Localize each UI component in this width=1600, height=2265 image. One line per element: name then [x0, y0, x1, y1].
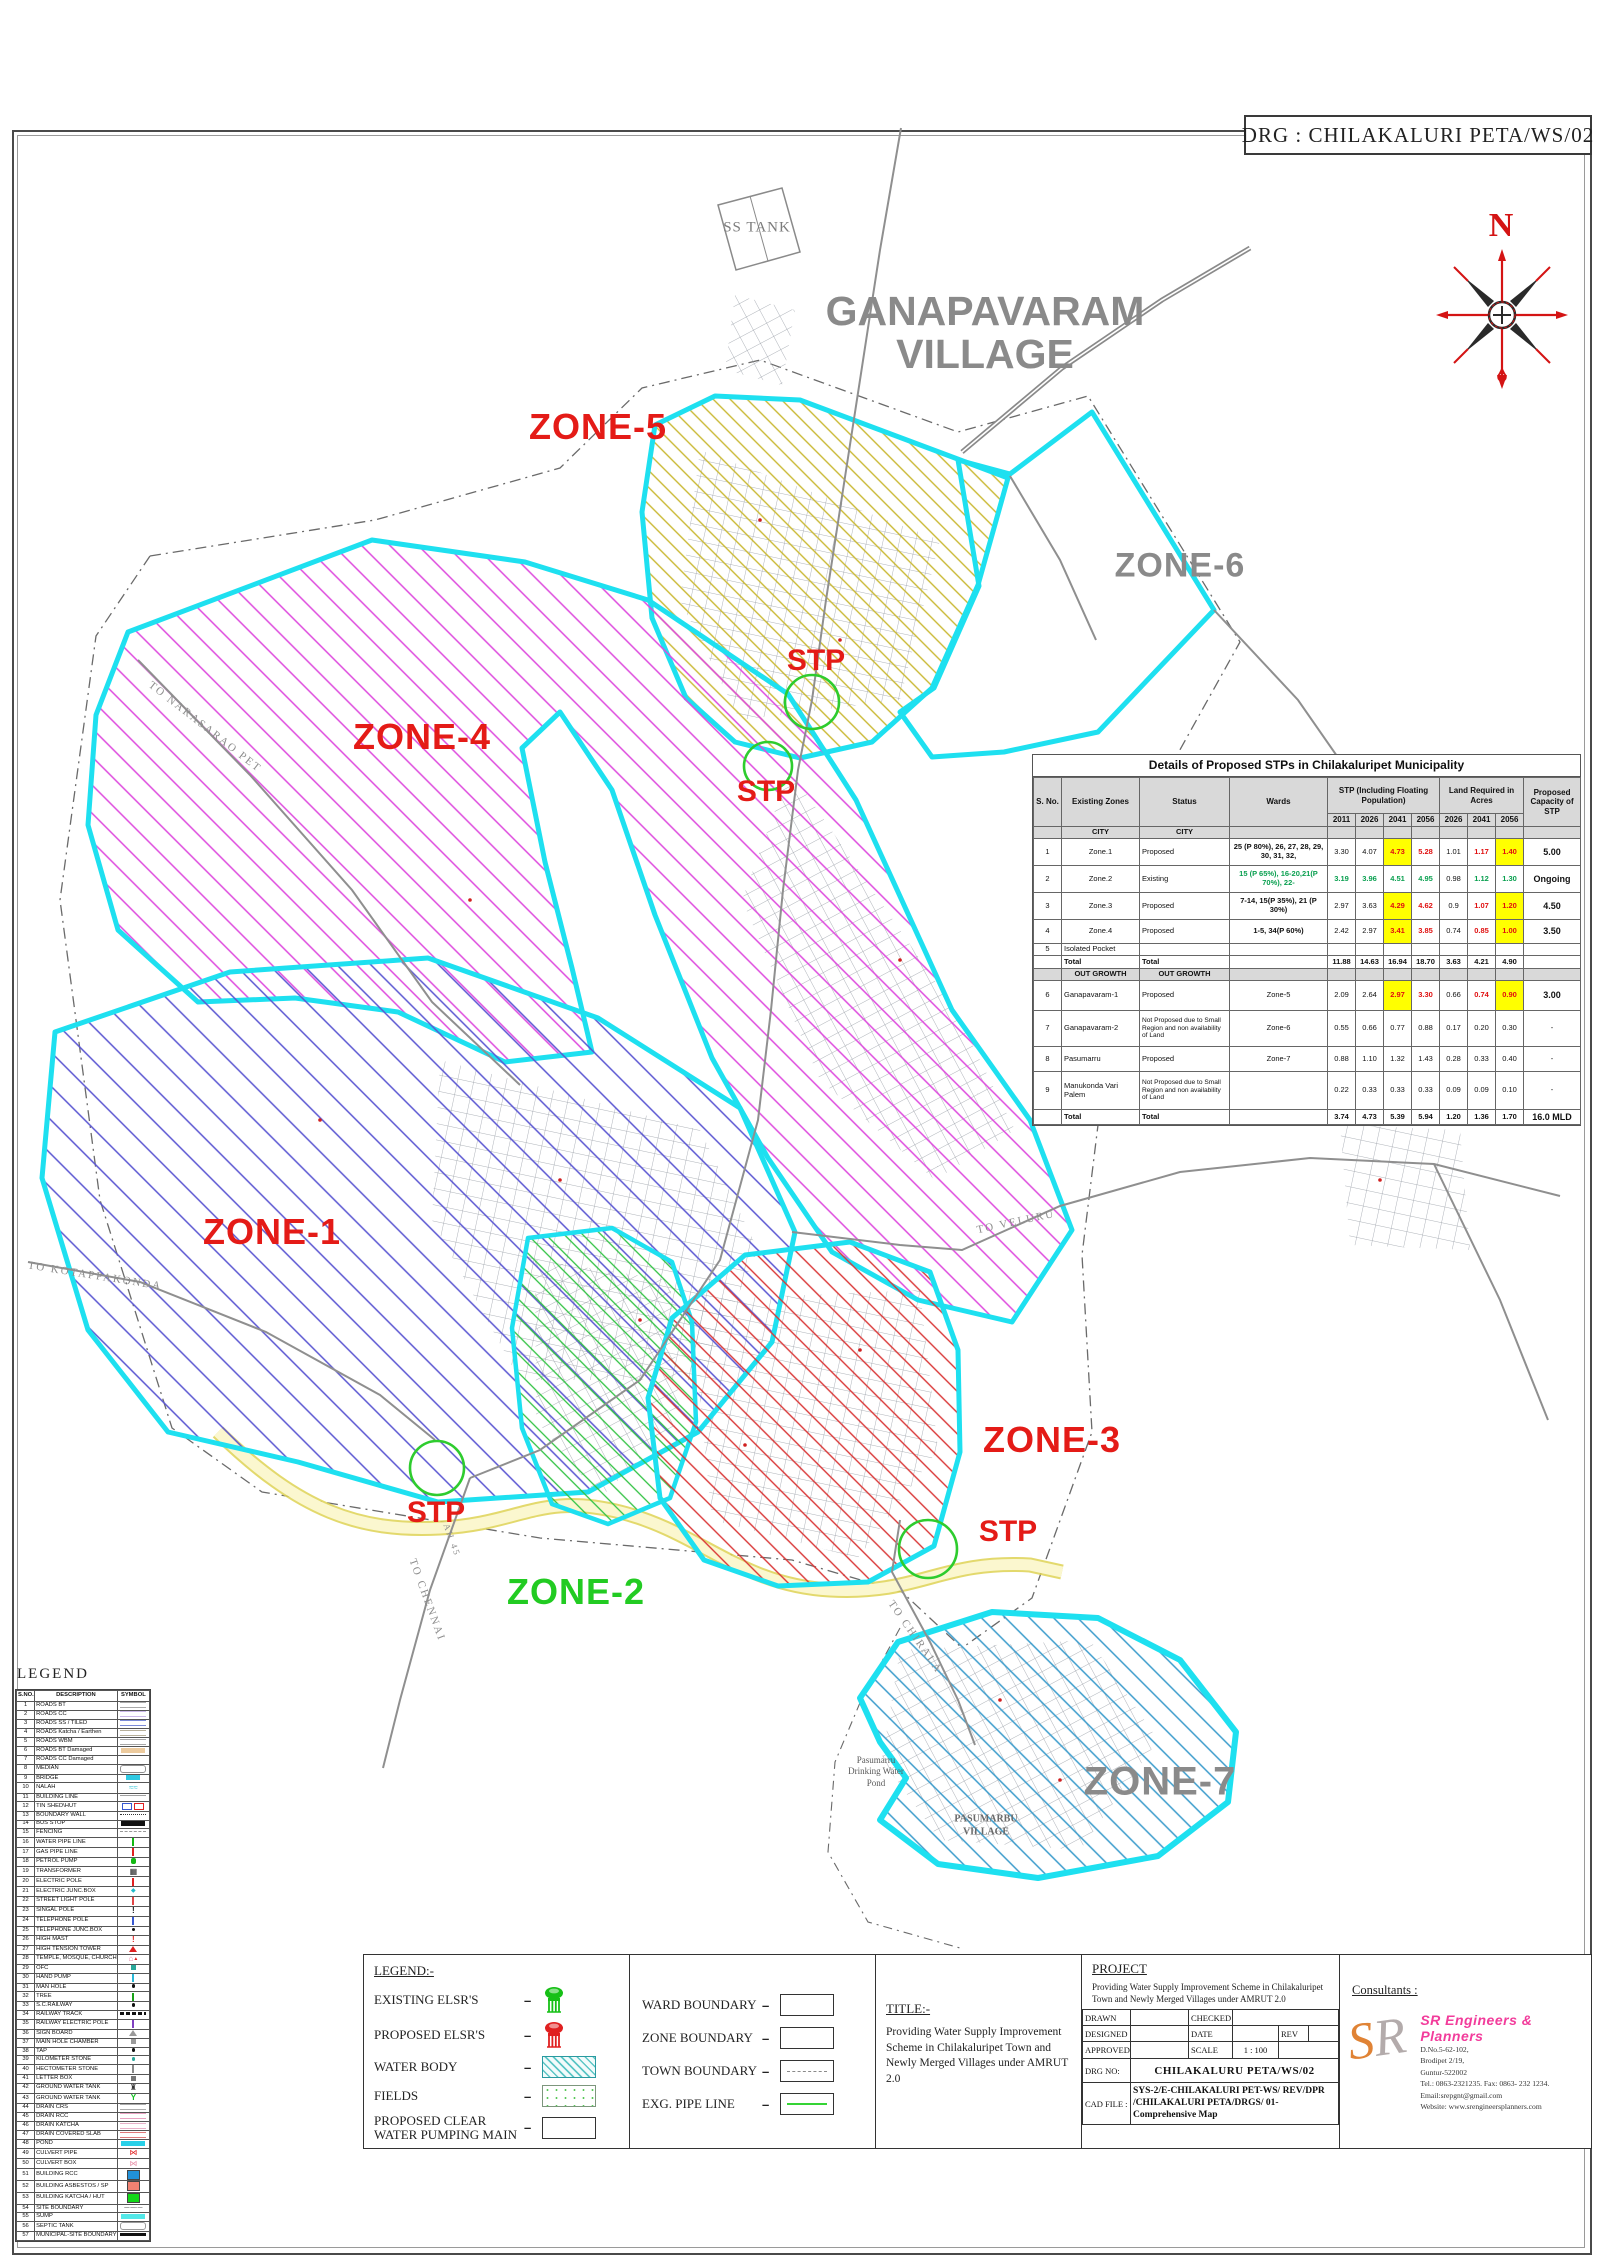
dash-glyph: –: [524, 1993, 542, 2008]
stp-cell: 4.51: [1384, 866, 1412, 893]
list-item: 49CULVERT PIPE⋈: [17, 2149, 150, 2159]
consultants-name: SR Engineers & Planners: [1420, 2012, 1591, 2044]
stp-cell: Isolated Pocket: [1062, 944, 1140, 956]
stp-cell: -: [1524, 1011, 1581, 1047]
list-item: 3ROADS SS / TILED: [17, 1720, 150, 1729]
list-item: 24TELEPHONE POLE: [17, 1916, 150, 1926]
dash-glyph: –: [524, 2060, 542, 2075]
dash-glyph: –: [762, 2064, 780, 2079]
stp-cell: 0.09: [1468, 1072, 1496, 1110]
stp-cell: [1468, 944, 1496, 956]
stp-cell: 4.73: [1384, 839, 1412, 866]
stp-cell: 1.30: [1496, 866, 1524, 893]
legend-item-label: PROPOSED CLEAR WATER PUMPING MAIN: [374, 2114, 524, 2141]
drawn-label: DRAWN: [1083, 2010, 1131, 2026]
table-row: 5Isolated Pocket: [1034, 944, 1581, 956]
stp-cell: 4.07: [1356, 839, 1384, 866]
legend-item: WATER BODY –: [374, 2056, 629, 2078]
label-zone4: ZONE-4: [353, 716, 491, 758]
list-item: 30HAND PUMP: [17, 1973, 150, 1983]
list-item: 14BUS STOP: [17, 1820, 150, 1829]
stp-cell: Proposed: [1140, 1047, 1230, 1072]
pond-icon: [117, 2140, 149, 2149]
table-row: 1Zone.1Proposed25 (P 80%), 26, 27, 28, 2…: [1034, 839, 1581, 866]
rev-label: REV: [1279, 2026, 1309, 2042]
stp-cell: 16.94: [1384, 956, 1412, 969]
stp-cell: 4.50: [1524, 893, 1581, 920]
list-item: 20ELECTRIC POLE: [17, 1877, 150, 1887]
stp-cell: 1.32: [1384, 1047, 1412, 1072]
legend-col-desc: DESCRIPTION: [35, 1691, 118, 1702]
stp-cell: 5.28: [1412, 839, 1440, 866]
stp-cell: 3.96: [1356, 866, 1384, 893]
drg-no-label: DRG NO:: [1083, 2059, 1131, 2083]
stp-cell: 0.33: [1384, 1072, 1412, 1110]
main-hole-chamber-icon: [117, 2038, 149, 2047]
street-light-pole-icon: [117, 1896, 149, 1906]
stp-cell: 3: [1034, 893, 1062, 920]
legend-item: EXISTING ELSR'S –: [374, 1986, 629, 2014]
stp-cell: Manukonda Vari Palem: [1062, 1072, 1140, 1110]
stp-cell: Total: [1062, 956, 1140, 969]
building-asbestos-sp-icon: [117, 2181, 149, 2193]
stp-cell: 0.22: [1328, 1072, 1356, 1110]
titleblock-project-section: PROJECT Providing Water Supply Improveme…: [1082, 1955, 1340, 2148]
list-item: 27HIGH TENSION TOWER: [17, 1945, 150, 1954]
letter-box-icon: [117, 2075, 149, 2084]
list-item: 39KILOMETER STONE: [17, 2056, 150, 2065]
legend-item: FIELDS –: [374, 2085, 629, 2107]
tree-icon: [117, 1992, 149, 2002]
list-item: 16WATER PIPE LINE: [17, 1837, 150, 1847]
label-stp-zone5: STP: [787, 644, 845, 678]
list-item: 51BUILDING RCC: [17, 2169, 150, 2181]
legend-item: ZONE BOUNDARY –: [642, 2027, 875, 2049]
stp-cell: -: [1524, 1072, 1581, 1110]
stp-cell: Proposed: [1140, 920, 1230, 944]
town-boundary-swatch: [780, 2060, 834, 2082]
project-heading: PROJECT: [1092, 1961, 1339, 1977]
list-item: 29OFC: [17, 1964, 150, 1973]
singal-pole-icon: !: [117, 1906, 149, 1916]
ground-water-tank-icon: Y: [117, 2093, 149, 2103]
stp-cell: 1.17: [1468, 839, 1496, 866]
approved-label: APPROVED: [1083, 2042, 1131, 2059]
building-katcha-hut-icon: [117, 2192, 149, 2204]
stp-cell: 0.17: [1440, 1011, 1468, 1047]
stp-cell: Total: [1140, 1110, 1230, 1125]
stp-details-table: Details of Proposed STPs in Chilakalurip…: [1032, 754, 1581, 1126]
list-item: 47DRAIN COVERED SLAB: [17, 2131, 150, 2140]
cad-file-label: CAD FILE :: [1083, 2083, 1131, 2125]
legend-item: TOWN BOUNDARY –: [642, 2060, 875, 2082]
municipal-map-canvas: [0, 0, 1600, 2265]
legend-col-symbol: SYMBOL: [117, 1691, 149, 1702]
list-item: 21ELECTRIC JUNC.BOX◆: [17, 1887, 150, 1896]
stp-cell: 1.01: [1440, 839, 1468, 866]
high-mast-icon: !: [117, 1935, 149, 1945]
legend-col-sno: S.NO.: [17, 1691, 35, 1702]
label-stp-zone4: STP: [737, 775, 795, 809]
scale-label: SCALE: [1189, 2042, 1233, 2059]
stp-cell: 4.21: [1468, 956, 1496, 969]
stp-year-header: 2056: [1496, 814, 1524, 827]
compass-rose-icon: [1427, 240, 1577, 390]
stp-cell: 0.88: [1412, 1011, 1440, 1047]
stp-cell: [1412, 944, 1440, 956]
table-row: 8PasumarruProposedZone-70.881.101.321.43…: [1034, 1047, 1581, 1072]
stp-cell: [1034, 956, 1062, 969]
stp-cell: 0.66: [1356, 1011, 1384, 1047]
project-text: Providing Water Supply Improvement Schem…: [1092, 1982, 1333, 2005]
rev-value: [1309, 2026, 1339, 2042]
legend-item-label: EXG. PIPE LINE: [642, 2097, 762, 2111]
stp-cell: 0.30: [1496, 1011, 1524, 1047]
table-row: TotalTotal3.744.735.395.941.201.361.7016…: [1034, 1110, 1581, 1125]
dash-glyph: –: [762, 1998, 780, 2013]
legend-table-grid: S.NO. DESCRIPTION SYMBOL 1ROADS BT2ROADS…: [16, 1690, 150, 2241]
existing-elsr-icon: [542, 1986, 566, 2014]
stp-header: Status: [1140, 778, 1230, 827]
titleblock-legend-section: LEGEND:- EXISTING ELSR'S – PROPOSED ELSR…: [364, 1955, 630, 2148]
list-item: 38TAP: [17, 2047, 150, 2056]
hand-pump-icon: [117, 1973, 149, 1983]
stp-cell: Ganapavaram-2: [1062, 1011, 1140, 1047]
stp-cell: 1.36: [1468, 1110, 1496, 1125]
temple-mosque-church-icon: ⌂▲: [117, 1954, 149, 1964]
stp-cell: 2.97: [1356, 920, 1384, 944]
stp-cell: 0.33: [1412, 1072, 1440, 1110]
legend-item-label: EXISTING ELSR'S: [374, 1993, 524, 2007]
approval-table: DRAWN CHECKED DESIGNED DATE REV APPROVED: [1082, 2009, 1339, 2125]
nalah-icon: ≈≈: [117, 1783, 149, 1793]
stp-cell: 9: [1034, 1072, 1062, 1110]
culvert-box-icon: ⋈: [117, 2159, 149, 2169]
titleblock-boundary-section: WARD BOUNDARY – ZONE BOUNDARY – TOWN BOU…: [630, 1955, 876, 2148]
label-zone6: ZONE-6: [1115, 547, 1246, 586]
list-item: 55SUMP: [17, 2213, 150, 2222]
label-zone3: ZONE-3: [983, 1419, 1121, 1461]
dash-glyph: –: [524, 2089, 542, 2104]
culvert-pipe-icon: ⋈: [117, 2149, 149, 2159]
stp-cell: [1524, 944, 1581, 956]
drain-crs-icon: [117, 2103, 149, 2112]
list-item: 7ROADS CC Damaged: [17, 1756, 150, 1765]
consultants-address: D.No.5-62-102,Brodipet 2/19,Guntur-52200…: [1420, 2044, 1591, 2112]
stp-cell: 3.41: [1384, 920, 1412, 944]
list-item: 15FENCING: [17, 1829, 150, 1838]
list-item: 28TEMPLE, MOSQUE, CHURCH⌂▲: [17, 1954, 150, 1964]
stp-cell: 3.00: [1524, 981, 1581, 1011]
list-item: 5ROADS WBM: [17, 1738, 150, 1747]
stp-cell: Ongoing: [1524, 866, 1581, 893]
boundary-swatch: [542, 2117, 596, 2139]
titleblock-title-section: TITLE:- Providing Water Supply Improveme…: [876, 1955, 1082, 2148]
bridge-icon: [117, 1774, 149, 1783]
stp-cell: 0.55: [1328, 1011, 1356, 1047]
stp-table-title: Details of Proposed STPs in Chilakalurip…: [1033, 755, 1580, 777]
stp-cell: [1440, 944, 1468, 956]
stp-cell: 3.63: [1356, 893, 1384, 920]
list-item: 48POND: [17, 2140, 150, 2149]
stp-cell: 16.0 MLD: [1524, 1110, 1581, 1125]
list-item: 12TIN SHED\HUT: [17, 1802, 150, 1812]
stp-cell: Zone-5: [1230, 981, 1328, 1011]
stp-cell: 0.77: [1384, 1011, 1412, 1047]
label-stp-zone1: STP: [407, 1496, 465, 1530]
label-ganapavaram-village: GANAPAVARAM VILLAGE: [826, 290, 1145, 376]
list-item: 32TREE: [17, 1992, 150, 2002]
list-item: 44DRAIN CRS: [17, 2103, 150, 2112]
list-item: 10NALAH≈≈: [17, 1783, 150, 1793]
ofc-icon: [117, 1964, 149, 1973]
list-item: 31MAN HOLE: [17, 1983, 150, 1992]
drain-katcha-icon: [117, 2122, 149, 2131]
fields-swatch: [542, 2085, 596, 2107]
label-stp-zone3: STP: [979, 1515, 1037, 1549]
municipal-site-boundary-icon: [117, 2232, 149, 2241]
scale-extra: [1279, 2042, 1339, 2059]
streets-ganapavaram: [725, 295, 795, 385]
stp-cell: [1384, 944, 1412, 956]
title-heading: TITLE:-: [886, 2001, 1081, 2017]
stp-cell: 3.19: [1328, 866, 1356, 893]
stp-cell: 5: [1034, 944, 1062, 956]
drg-number-text: DRG : CHILAKALURI PETA/WS/02: [1242, 123, 1594, 148]
list-item: 13BOUNDARY WALL: [17, 1811, 150, 1820]
stp-year-header: 2041: [1468, 814, 1496, 827]
stp-cell: 1.43: [1412, 1047, 1440, 1072]
titleblock-consultants-section: Consultants : S R SR Engineers & Planner…: [1340, 1955, 1591, 2148]
stp-cell: 14.63: [1356, 956, 1384, 969]
legend-item-label: ZONE BOUNDARY: [642, 2031, 762, 2045]
electric-pole-icon: [117, 1877, 149, 1887]
stp-cell: [1230, 956, 1328, 969]
list-item: 1ROADS BT: [17, 1701, 150, 1710]
list-item: 2ROADS CC: [17, 1710, 150, 1719]
list-item: 9BRIDGE: [17, 1774, 150, 1783]
stp-cell: [1230, 1072, 1328, 1110]
list-item: 6ROADS BT Damaged: [17, 1747, 150, 1756]
stp-cell: Ganapavaram-1: [1062, 981, 1140, 1011]
stp-cell: 1.20: [1440, 1110, 1468, 1125]
pipe-line-swatch: [780, 2093, 834, 2115]
date-label: DATE: [1189, 2026, 1233, 2042]
list-item: 56SEPTIC TANK: [17, 2222, 150, 2232]
building-rcc-icon: [117, 2169, 149, 2181]
bus-stop-icon: [117, 1820, 149, 1829]
stp-cell: 0.33: [1468, 1047, 1496, 1072]
stp-cell: 7-14, 15(P 35%), 21 (P 30%): [1230, 893, 1328, 920]
stp-cell: Zone-6: [1230, 1011, 1328, 1047]
stp-cell: 1.40: [1496, 839, 1524, 866]
stp-cell: Proposed: [1140, 981, 1230, 1011]
stp-table-grid: S. No.Existing ZonesStatusWardsSTP (Incl…: [1033, 777, 1581, 1125]
table-row: 4Zone.4Proposed1-5, 34(P 60%)2.422.973.4…: [1034, 920, 1581, 944]
list-item: 36SIGN BOARD: [17, 2029, 150, 2038]
stp-cell: 5.39: [1384, 1110, 1412, 1125]
list-item: 43GROUND WATER TANKY: [17, 2093, 150, 2103]
zone-7-area: [860, 1612, 1236, 1878]
s-c-railway-icon: [117, 2002, 149, 2011]
list-item: 18PETROL PUMP: [17, 1858, 150, 1867]
roads-cc-icon: [117, 1710, 149, 1719]
stp-cell: 4.95: [1412, 866, 1440, 893]
title-text: Providing Water Supply Improvement Schem…: [886, 2025, 1073, 2087]
stp-cell: 3.85: [1412, 920, 1440, 944]
list-item: 26HIGH MAST!: [17, 1935, 150, 1945]
stp-cell: 0.85: [1468, 920, 1496, 944]
stp-cell: 2.09: [1328, 981, 1356, 1011]
stp-cell: 3.30: [1412, 981, 1440, 1011]
consultants-address-line: Website: www.srengineersplanners.com: [1420, 2101, 1591, 2112]
drg-number-box: DRG : CHILAKALURI PETA/WS/02: [1244, 115, 1592, 155]
stp-cell: 3.63: [1440, 956, 1468, 969]
stp-cell: Not Proposed due to Small Region and non…: [1140, 1072, 1230, 1110]
list-item: 4ROADS Katcha / Earthen: [17, 1729, 150, 1738]
stp-cell: 6: [1034, 981, 1062, 1011]
stp-cell: [1524, 956, 1581, 969]
dash-glyph: –: [762, 2097, 780, 2112]
list-item: 11BUILDING LINE: [17, 1793, 150, 1802]
median-icon: [117, 1764, 149, 1774]
dash-glyph: –: [762, 2031, 780, 2046]
stp-cell: Zone.2: [1062, 866, 1140, 893]
label-pasumarbu-village: PASUMARBU VILLAGE: [954, 1814, 1017, 1839]
list-item: 25TELEPHONE JUNC.BOX: [17, 1926, 150, 1935]
stp-cell: 2.97: [1384, 981, 1412, 1011]
high-tension-tower-icon: [117, 1945, 149, 1954]
stp-cell: 4.62: [1412, 893, 1440, 920]
table-row: 9Manukonda Vari PalemNot Proposed due to…: [1034, 1072, 1581, 1110]
roads-wbm-icon: [117, 1738, 149, 1747]
scale-value: 1 : 100: [1233, 2042, 1279, 2059]
stp-cell: 8: [1034, 1047, 1062, 1072]
list-item: 19TRANSFORMER▦: [17, 1867, 150, 1877]
list-item: 17GAS PIPE LINE: [17, 1847, 150, 1857]
list-item: 33S.C.RAILWAY: [17, 2002, 150, 2011]
table-row: OUT GROWTHOUT GROWTH: [1034, 969, 1581, 981]
label-zone7: ZONE-7: [1084, 1760, 1237, 1805]
stp-cell: 4.73: [1356, 1110, 1384, 1125]
consultants-address-line: Email:srepgnt@gmail.com: [1420, 2090, 1591, 2101]
dash-glyph: –: [524, 2120, 542, 2135]
roads-ss-tiled-icon: [117, 1720, 149, 1729]
stp-cell: 1.70: [1496, 1110, 1524, 1125]
date-value: [1233, 2026, 1279, 2042]
proposed-elsr-icon: [542, 2021, 566, 2049]
stp-cell: 1.00: [1496, 920, 1524, 944]
stp-cell: Total: [1140, 956, 1230, 969]
stp-cell: 25 (P 80%), 26, 27, 28, 29, 30, 31, 32,: [1230, 839, 1328, 866]
table-row: 3Zone.3Proposed7-14, 15(P 35%), 21 (P 30…: [1034, 893, 1581, 920]
legend-item: PROPOSED CLEAR WATER PUMPING MAIN –: [374, 2114, 629, 2141]
stp-cell: 1-5, 34(P 60%): [1230, 920, 1328, 944]
label-zone1: ZONE-1: [203, 1211, 341, 1253]
stp-cell: 0.10: [1496, 1072, 1524, 1110]
stp-cell: Zone.4: [1062, 920, 1140, 944]
water-body-swatch: [542, 2056, 596, 2078]
list-item: 41LETTER BOX: [17, 2075, 150, 2084]
roads-bt-damaged-icon: [117, 1747, 149, 1756]
drain-covered-slab-icon: [117, 2131, 149, 2140]
list-item: 8MEDIAN: [17, 1764, 150, 1774]
designed-value: [1131, 2026, 1189, 2042]
stp-cell: 0.9: [1440, 893, 1468, 920]
stp-cell: Zone-7: [1230, 1047, 1328, 1072]
stp-cell: [1230, 944, 1328, 956]
electric-junc-box-icon: ◆: [117, 1887, 149, 1896]
legend-item-label: WATER BODY: [374, 2060, 524, 2074]
transformer-icon: ▦: [117, 1867, 149, 1877]
table-row: TotalTotal11.8814.6316.9418.703.634.214.…: [1034, 956, 1581, 969]
stp-cell: 2.64: [1356, 981, 1384, 1011]
stp-cell: 11.88: [1328, 956, 1356, 969]
stp-cell: 1.07: [1468, 893, 1496, 920]
stp-cell: 0.66: [1440, 981, 1468, 1011]
sign-board-icon: [117, 2029, 149, 2038]
legend-item-label: PROPOSED ELSR'S: [374, 2028, 524, 2042]
consultants-address-line: D.No.5-62-102,: [1420, 2044, 1591, 2055]
stp-cell: 7: [1034, 1011, 1062, 1047]
stp-cell: 3.50: [1524, 920, 1581, 944]
stp-cell: Not Proposed due to Small Region and non…: [1140, 1011, 1230, 1047]
tap-icon: [117, 2047, 149, 2056]
table-row: 6Ganapavaram-1ProposedZone-52.092.642.97…: [1034, 981, 1581, 1011]
list-item: 37MAIN HOLE CHAMBER: [17, 2038, 150, 2047]
boundary-swatch: [780, 2027, 834, 2049]
legend-item: EXG. PIPE LINE –: [642, 2093, 875, 2115]
stp-cell: 1: [1034, 839, 1062, 866]
stp-year-header: 2026: [1440, 814, 1468, 827]
stp-header: Existing Zones: [1062, 778, 1140, 827]
roads-katcha-earthen-icon: [117, 1729, 149, 1738]
table-row: CITYCITY: [1034, 827, 1581, 839]
stp-cell: 0.74: [1440, 920, 1468, 944]
list-item: 22STREET LIGHT POLE: [17, 1896, 150, 1906]
checked-label: CHECKED: [1189, 2010, 1233, 2026]
cad-file-value: SYS-2/E-CHILAKALURI PET-WS/ REV/DPR /CHI…: [1131, 2083, 1339, 2125]
stp-cell: 0.98: [1440, 866, 1468, 893]
ground-water-tank-icon: ♜: [117, 2083, 149, 2093]
petrol-pump-icon: [117, 1858, 149, 1867]
drg-no-value: CHILAKALURU PETA/WS/02: [1131, 2059, 1339, 2083]
stp-cell: 2: [1034, 866, 1062, 893]
drawing-sheet: DRG : CHILAKALURI PETA/WS/02 GANAPAVARAM…: [0, 0, 1600, 2265]
consultants-address-line: Brodipet 2/19,: [1420, 2055, 1591, 2066]
label-pasumarru-pond: Pasumarru Drinking Water Pond: [848, 1755, 904, 1789]
stp-cell: 0.74: [1468, 981, 1496, 1011]
building-line-icon: [117, 1793, 149, 1802]
list-item: 50CULVERT BOX⋈: [17, 2159, 150, 2169]
approved-value: [1131, 2042, 1189, 2059]
stp-cell: 5.00: [1524, 839, 1581, 866]
stp-cell: 0.33: [1356, 1072, 1384, 1110]
titleblock-legend-heading: LEGEND:-: [374, 1963, 629, 1979]
label-zone5: ZONE-5: [529, 406, 667, 448]
stp-cell: Proposed: [1140, 893, 1230, 920]
railway-electric-pole-icon: [117, 2019, 149, 2029]
legend-item-label: WARD BOUNDARY: [642, 1998, 762, 2012]
stp-cell: [1034, 1110, 1062, 1125]
telephone-junc-box-icon: [117, 1926, 149, 1935]
table-row: 7Ganapavaram-2Not Proposed due to Small …: [1034, 1011, 1581, 1047]
list-item: 23SINGAL POLE!: [17, 1906, 150, 1916]
list-item: 54SITE BOUNDARY—·—·—: [17, 2204, 150, 2213]
consultants-address-line: Tel.: 0863-2321235. Fax: 0863- 232 1234.: [1420, 2078, 1591, 2089]
stp-cell: 15 (P 65%), 16-20,21(P 70%), 22-: [1230, 866, 1328, 893]
roads-cc-damaged-icon: [117, 1756, 149, 1765]
